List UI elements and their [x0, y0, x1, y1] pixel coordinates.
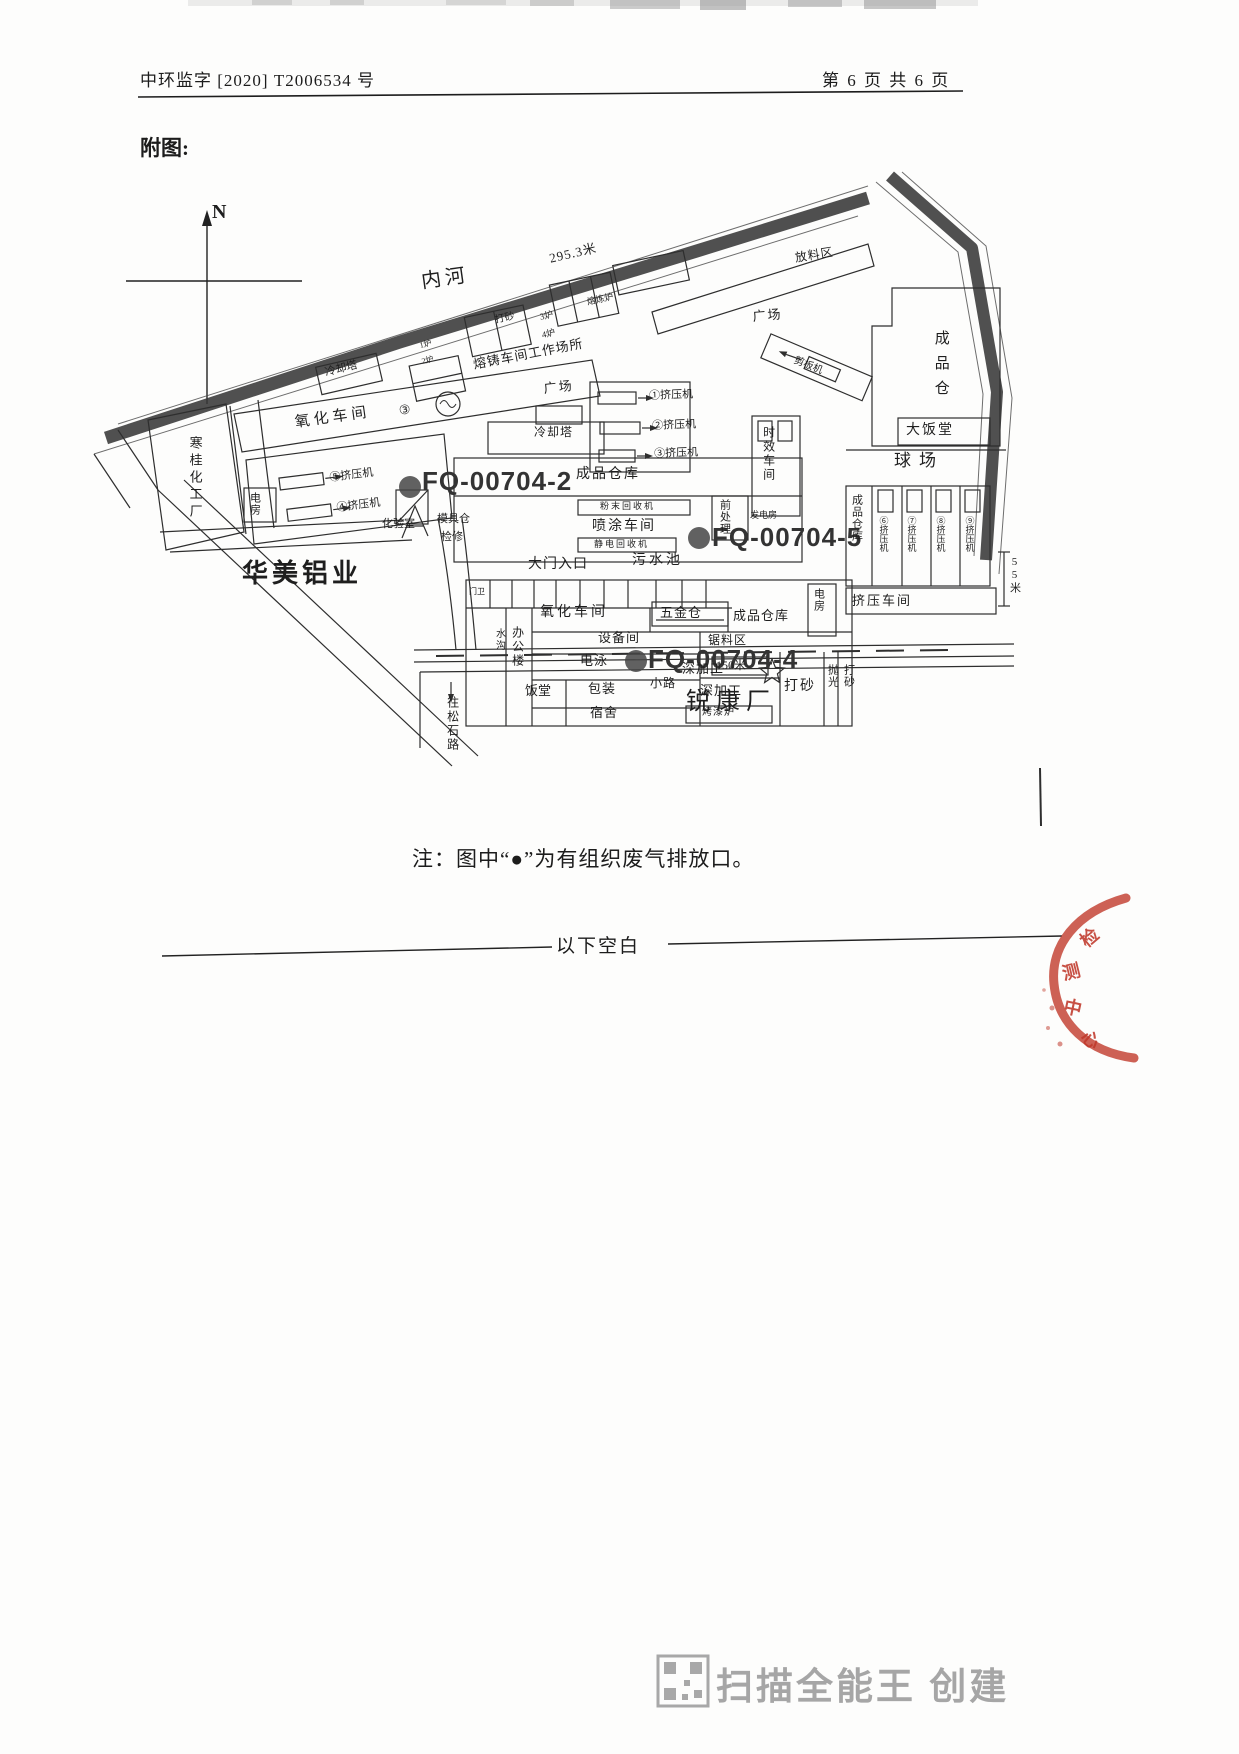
extruder-7: ⑦挤压机: [906, 516, 915, 552]
dormitory: 宿舍: [590, 706, 618, 720]
sandblast-south: 打砂: [784, 680, 816, 695]
electrostatic-recycler: 静电回收机: [594, 540, 649, 549]
emission-outlet-dot-fq-00704-5: [688, 527, 710, 549]
circled-3: ③: [398, 402, 411, 417]
oxidation-workshop-south: 氧化车间: [540, 606, 608, 621]
plaza-west: 广场: [543, 379, 574, 396]
building-outlines: [94, 244, 1041, 826]
scan-artifacts: [188, 0, 978, 10]
generator-room: 发电房: [750, 511, 777, 520]
watermark-text: 扫描全能王 创建: [716, 1656, 1009, 1710]
scanned-report-page: 中环监字 [2020] T2006534 号 第 6 页 共 6 页 附图: N…: [0, 0, 1239, 1754]
outlet-label-fq5: FQ-00704-5: [712, 524, 862, 551]
compass-n: N: [212, 202, 226, 223]
ball-court: 球场: [894, 452, 944, 470]
mold-store: 模具仓: [437, 514, 470, 526]
power-room-west: 电房: [248, 492, 260, 516]
spray-workshop: 喷涂车间: [592, 520, 656, 535]
extruder-8: ⑧挤压机: [935, 516, 944, 552]
pretreatment: 前处理: [718, 499, 730, 535]
blank-marker: 以下空白: [556, 931, 640, 958]
finished-goods-store: 成品仓: [932, 330, 948, 405]
document-number: 中环监字 [2020] T2006534 号: [140, 66, 375, 91]
ditch: 水沟: [493, 628, 504, 652]
finished-warehouse-south: 成品仓库: [733, 609, 789, 623]
path-label: 小路: [650, 677, 676, 690]
powder-recycler: 粉末回收机: [600, 502, 655, 511]
emission-outlet-dot-fq-00704-4: [625, 650, 647, 672]
qr-code-icon: [658, 1656, 708, 1706]
outlet-label-fq2: FQ-00704-2: [422, 468, 572, 495]
huamei: 华美铝业: [242, 560, 362, 587]
page-indicator: 第 6 页 共 6 页: [822, 66, 950, 91]
figure-label: 附图:: [140, 132, 189, 162]
site-plan-drawing: [0, 0, 1239, 1754]
extruder-1: ①挤压机: [649, 389, 693, 402]
plaza-north: 广场: [752, 307, 783, 323]
canteen-large: 大饭堂: [906, 424, 954, 439]
dim-150m: 150米: [716, 659, 746, 672]
finished-warehouse-center: 成品仓库: [576, 468, 640, 483]
extruder-2: ②挤压机: [652, 419, 696, 432]
equipment-room: 设备间: [598, 631, 640, 645]
main-gate: 大门入口: [528, 558, 588, 573]
packing: 包装: [588, 682, 616, 696]
ruikang: 锐康厂: [686, 690, 776, 715]
songshi-road: 往松石路: [446, 696, 459, 752]
dim-55m: 55米: [1008, 556, 1020, 594]
power-room-east: 电房: [812, 588, 824, 612]
river-banks: [94, 172, 1012, 574]
office-building: 办公楼: [511, 626, 524, 668]
emission-outlet-dot-fq-00704-2: [399, 476, 421, 498]
header-rule: [138, 91, 963, 97]
map-note: 注：图中“●”为有组织废气排放口。: [412, 843, 754, 873]
extruder-3: ③挤压机: [654, 447, 698, 460]
chemical-plant: 寒桂化工厂: [188, 436, 202, 521]
emission-outlet-dots: [399, 476, 710, 672]
extrusion-workshop: 挤压车间: [852, 594, 912, 608]
hardware-store: 五金仓: [660, 606, 702, 620]
polishing-col: 抛光: [826, 664, 838, 688]
aging-workshop: 时效车间: [762, 426, 775, 482]
canteen: 饭堂: [525, 684, 551, 698]
compass-icon: [126, 210, 302, 404]
sandblast-east-col: 打砂: [842, 664, 854, 688]
extruder-9: ⑨挤压机: [964, 516, 973, 552]
gatehouse: 门卫: [469, 588, 485, 596]
finished-warehouse-east: 成品仓库: [850, 494, 862, 542]
sewage-pool: 污水池: [632, 554, 683, 569]
extruder-6: ⑥挤压机: [878, 516, 887, 552]
lab: 化验室: [382, 519, 415, 531]
maintenance: 检修: [441, 532, 463, 544]
cooling-tower-2: 冷却塔: [534, 426, 573, 439]
electrophoresis: 电泳: [580, 654, 608, 668]
saw-area: 锯料区: [708, 634, 747, 647]
